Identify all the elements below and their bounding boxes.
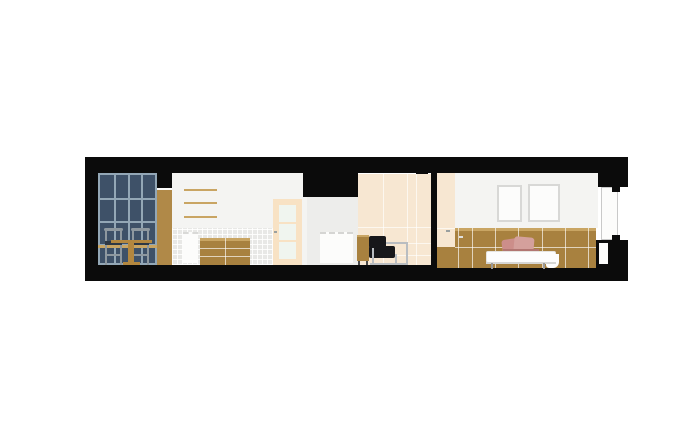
window-frame-mark-top	[612, 187, 620, 192]
blanket-drape	[546, 254, 559, 268]
panel-joint	[565, 228, 566, 268]
door-glass-divider	[279, 222, 296, 224]
left-wall	[85, 157, 98, 265]
cabinet-leg	[358, 261, 360, 265]
bed-leg	[491, 263, 493, 269]
wardrobe-joint	[358, 227, 431, 228]
paneling-top-rail	[455, 228, 596, 231]
island-drawer-joint	[200, 248, 250, 249]
window-mullion-icon	[100, 221, 155, 223]
side-cabinet	[357, 235, 369, 261]
ceiling-slab	[85, 157, 598, 173]
panel-joint	[588, 228, 589, 268]
side-cabinet-top	[357, 235, 369, 237]
door-handle	[274, 231, 277, 233]
floor-slab-left	[85, 265, 431, 281]
bed-leg	[543, 263, 545, 269]
table-pedestal	[128, 243, 134, 262]
panel-joint	[458, 228, 459, 268]
door-glass-divider	[279, 240, 296, 242]
window-mullion-icon	[100, 198, 155, 200]
bed-frame-rail	[486, 262, 556, 264]
lintel-volume	[303, 173, 358, 197]
cabinet-leg	[366, 261, 368, 265]
bedroom-upper-wall	[455, 173, 598, 228]
fireplace-opening	[320, 232, 353, 263]
kitchen-island	[200, 238, 250, 265]
section-drawing-canvas	[0, 0, 700, 445]
closet-door-handle	[459, 236, 463, 238]
dining-table	[111, 240, 152, 265]
radiator-niche	[599, 243, 608, 264]
right-corner-block	[598, 157, 628, 187]
wardrobe-base-cabinet	[437, 247, 455, 268]
wardrobe-joint	[416, 174, 417, 265]
facade-window-section	[601, 187, 618, 240]
appliance-niche	[183, 232, 198, 263]
wardrobe-joint	[437, 228, 455, 229]
door-glass-panel	[279, 205, 296, 259]
timber-column	[157, 190, 172, 265]
picture-frame	[528, 184, 560, 222]
bed	[486, 237, 559, 269]
island-drawer-joint	[200, 256, 250, 257]
panel-joint	[472, 228, 473, 268]
table-foot	[123, 262, 140, 265]
ceiling-notch-left	[157, 173, 172, 188]
kitchen-shelf	[184, 216, 217, 218]
armchair-sled-base	[370, 263, 408, 265]
wardrobe-handle	[446, 230, 450, 232]
kitchen-shelf	[184, 202, 217, 204]
armchair-front-leg	[406, 242, 408, 265]
window-frame-mark-bottom	[612, 235, 620, 240]
interior-door	[273, 199, 302, 265]
island-drawer-joint	[225, 238, 226, 265]
picture-frame	[497, 185, 522, 222]
kitchen-shelf	[184, 189, 217, 191]
armchair	[369, 236, 408, 265]
